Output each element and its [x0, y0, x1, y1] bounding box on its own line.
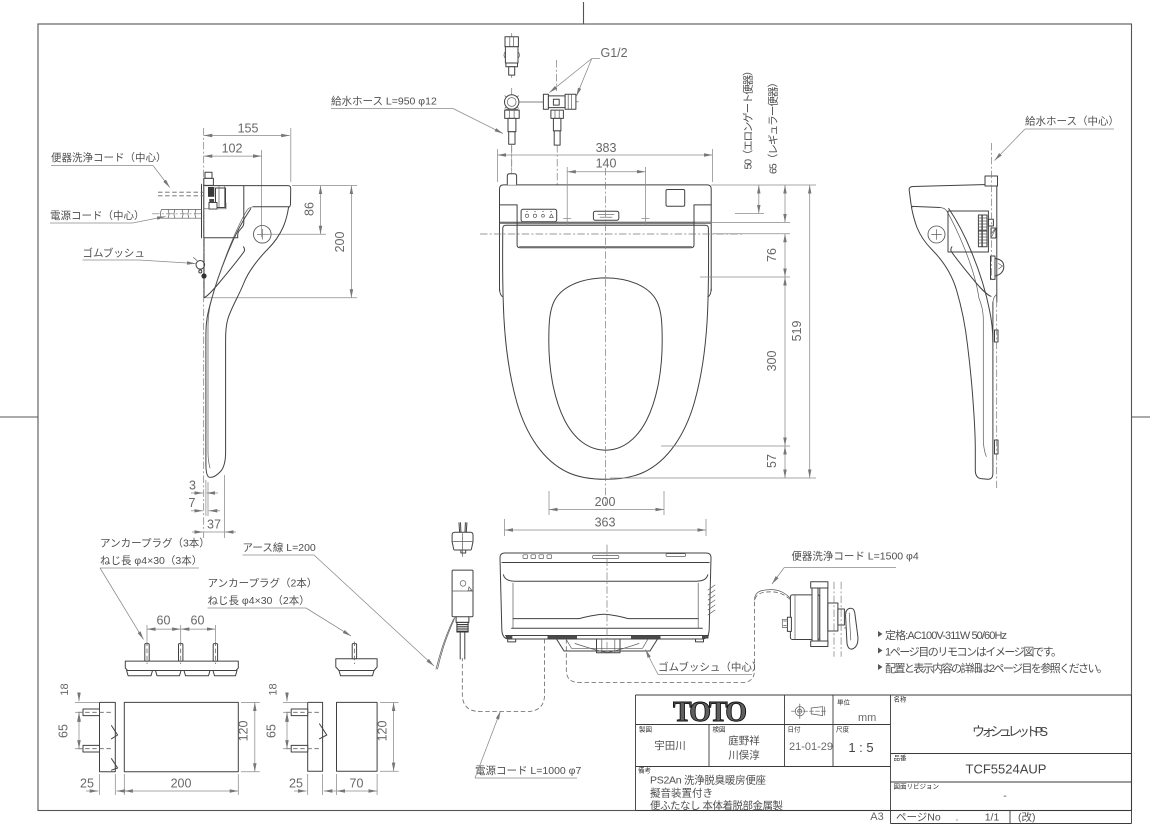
svg-text:G1/2: G1/2: [601, 46, 628, 60]
svg-text:120: 120: [376, 721, 390, 742]
svg-text:.: .: [956, 812, 959, 824]
svg-text:57: 57: [765, 454, 779, 468]
svg-text:3: 3: [189, 479, 196, 493]
svg-text:庭野祥: 庭野祥: [728, 734, 760, 747]
svg-text:電源コード L=1000 φ7: 電源コード L=1000 φ7: [475, 764, 581, 777]
svg-text:品番: 品番: [894, 754, 908, 762]
svg-text:50（エロンゲート便器）: 50（エロンゲート便器）: [742, 66, 755, 170]
svg-text:140: 140: [596, 157, 617, 171]
svg-text:25: 25: [80, 777, 94, 791]
svg-text:備考: 備考: [638, 766, 652, 775]
svg-text:給水ホース（中心）: 給水ホース（中心）: [1025, 115, 1119, 128]
svg-text:擬音装置付き: 擬音装置付き: [650, 787, 713, 800]
svg-text:配置と表示内容の詳細は2ページ目を参照ください。: 配置と表示内容の詳細は2ページ目を参照ください。: [885, 661, 1108, 675]
svg-text:21-01-29: 21-01-29: [789, 741, 833, 753]
svg-text:検図: 検図: [713, 725, 726, 734]
svg-text:383: 383: [596, 141, 617, 155]
svg-text:1ページ目のリモコンはイメージ図です。: 1ページ目のリモコンはイメージ図です。: [885, 646, 1062, 659]
svg-text:65（レギュラー便器）: 65（レギュラー便器）: [767, 77, 780, 174]
svg-text:60: 60: [191, 614, 205, 628]
svg-text:川俣淳: 川俣淳: [728, 749, 760, 762]
svg-text:尺度: 尺度: [836, 725, 850, 734]
svg-text:363: 363: [595, 516, 616, 530]
svg-text:ゴムブッシュ: ゴムブッシュ: [83, 247, 145, 260]
svg-text:1 : 5: 1 : 5: [848, 740, 873, 755]
svg-text:70: 70: [350, 777, 364, 791]
svg-text:65: 65: [265, 724, 279, 738]
svg-text:図面リビジョン: 図面リビジョン: [894, 782, 940, 791]
svg-text:155: 155: [238, 122, 259, 136]
svg-text:便器洗浄コード L=1500 φ4: 便器洗浄コード L=1500 φ4: [791, 550, 918, 563]
svg-text:mm: mm: [858, 712, 876, 724]
svg-text:102: 102: [222, 142, 243, 156]
svg-text:便器洗浄コード（中心）: 便器洗浄コード（中心）: [51, 151, 167, 164]
svg-text:名称: 名称: [894, 695, 908, 704]
svg-text:便ふたなし 本体着脱部金属製: 便ふたなし 本体着脱部金属製: [650, 799, 784, 812]
svg-text:-: -: [1003, 790, 1007, 802]
svg-text:(改): (改): [1018, 811, 1036, 824]
svg-text:ウォシュレットPS: ウォシュレットPS: [972, 724, 1048, 739]
svg-text:アンカープラグ（3本）: アンカープラグ（3本）: [100, 537, 210, 550]
svg-text:単位: 単位: [837, 698, 851, 707]
svg-text:7: 7: [189, 496, 196, 510]
svg-text:18: 18: [59, 683, 71, 695]
svg-text:200: 200: [595, 495, 616, 509]
svg-text:定格:AC100V-311W 50/60Hz: 定格:AC100V-311W 50/60Hz: [885, 628, 1007, 642]
svg-text:200: 200: [333, 232, 347, 253]
svg-text:25: 25: [289, 777, 303, 791]
svg-text:日付: 日付: [788, 725, 802, 734]
svg-text:1/1: 1/1: [985, 812, 1000, 824]
svg-text:TOTO: TOTO: [673, 697, 747, 728]
svg-text:製図: 製図: [639, 725, 652, 734]
svg-text:電源コード（中心）: 電源コード（中心）: [50, 209, 145, 222]
svg-text:300: 300: [765, 351, 779, 372]
svg-text:86: 86: [303, 202, 317, 216]
svg-text:ページNo: ページNo: [896, 812, 941, 824]
svg-text:PS2An 洗浄脱臭暖房便座: PS2An 洗浄脱臭暖房便座: [650, 774, 766, 787]
svg-text:200: 200: [171, 777, 192, 791]
svg-text:ゴムブッシュ（中心）: ゴムブッシュ（中心）: [658, 661, 762, 674]
svg-text:A3: A3: [870, 811, 883, 823]
svg-text:TCF5524AUP: TCF5524AUP: [966, 762, 1047, 777]
svg-text:37: 37: [207, 518, 221, 532]
svg-text:519: 519: [790, 321, 804, 342]
svg-text:76: 76: [765, 248, 779, 262]
svg-text:ねじ長 φ4×30（3本）: ねじ長 φ4×30（3本）: [100, 554, 202, 567]
svg-text:18: 18: [268, 683, 280, 695]
svg-text:120: 120: [237, 721, 251, 742]
svg-text:ねじ長 φ4×30（2本）: ねじ長 φ4×30（2本）: [208, 594, 310, 607]
svg-text:アンカープラグ（2本）: アンカープラグ（2本）: [208, 577, 318, 590]
svg-text:60: 60: [157, 614, 171, 628]
svg-text:宇田川: 宇田川: [654, 739, 686, 752]
svg-text:アース線 L=200: アース線 L=200: [243, 541, 316, 554]
svg-text:65: 65: [57, 724, 71, 738]
svg-text:給水ホース L=950 φ12: 給水ホース L=950 φ12: [331, 95, 437, 108]
